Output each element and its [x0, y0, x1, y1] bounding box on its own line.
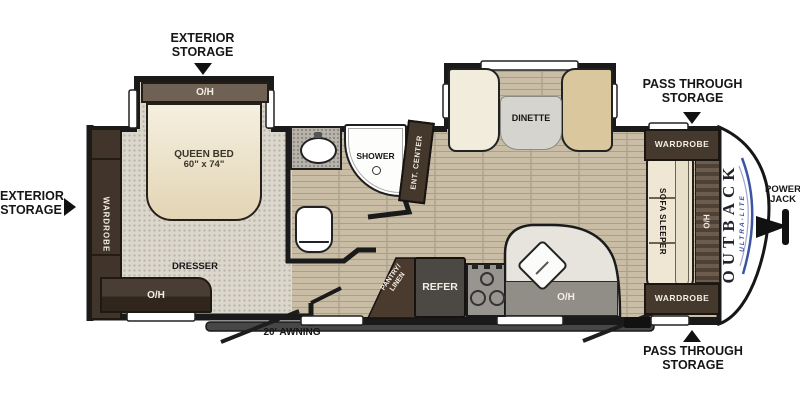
refrigerator: REFER: [414, 257, 466, 318]
window-icon: [481, 61, 578, 70]
bath-vanity: [290, 126, 342, 170]
exterior-storage-left-label: EXTERIOR STORAGE: [0, 190, 62, 218]
cabinet-divider: [92, 158, 120, 160]
arrow-down-icon: [194, 63, 212, 75]
toilet-base: [299, 241, 329, 250]
entertainment-center-label: ENT. CENTER: [409, 134, 425, 189]
brand-sub: ULTRA-LITE: [739, 150, 746, 296]
stove-knob-icon: [496, 264, 502, 269]
entry-door-opening: [301, 316, 363, 325]
arrow-right-icon: [64, 198, 76, 216]
toilet-icon: [295, 206, 333, 253]
front-wardrobe-top: WARDROBE: [644, 129, 720, 161]
shower-label: SHOWER: [346, 152, 405, 161]
stove-knob-icon: [472, 264, 478, 269]
bedroom-door-leaf: [311, 288, 341, 303]
wall-bath-half: [286, 250, 376, 261]
pass-through-bottom-label: PASS THROUGH STORAGE: [640, 345, 746, 373]
stove: [466, 263, 506, 317]
shower-drain-icon: [372, 166, 381, 175]
cabinet-divider: [92, 254, 120, 256]
wardrobe-label: WARDROBE: [655, 294, 710, 303]
bath-sink-icon: [300, 137, 337, 164]
wardrobe-label: WARDROBE: [655, 140, 710, 149]
arrow-up-icon: [683, 330, 701, 342]
rear-wardrobe-label: WARDROBE: [102, 196, 111, 252]
kitchen-overhead-cabinet: O/H: [505, 281, 618, 316]
bedroom-overhead-cabinet: O/H: [141, 82, 269, 103]
sofa-label-wrap: SOFA SLEEPER: [646, 153, 680, 289]
sofa-overhead-cabinet: O/H: [695, 159, 720, 283]
dresser-label: DRESSER: [142, 262, 248, 272]
queen-bed: QUEEN BED 60" x 74": [146, 103, 262, 221]
window-icon: [127, 312, 195, 321]
window-icon: [651, 316, 689, 325]
burner-icon: [470, 290, 486, 306]
refrigerator-label: REFER: [422, 282, 458, 294]
exterior-storage-top-label: EXTERIOR STORAGE: [150, 32, 255, 60]
awning-label: 20' AWNING: [252, 327, 332, 338]
window-icon: [129, 90, 137, 128]
pass-through-top-label: PASS THROUGH STORAGE: [640, 78, 745, 106]
sofa-sleeper-label: SOFA SLEEPER: [659, 187, 668, 254]
dinette-seat-right: [561, 68, 613, 152]
power-jack-label: POWER JACK: [763, 185, 800, 206]
entry-step-icon: [624, 317, 651, 328]
stove-knob-icon: [484, 264, 490, 269]
floor-plan: O/H QUEEN BED 60" x 74" WARDROBE DRESSER…: [0, 0, 800, 400]
dinette-label: DINETTE: [495, 114, 567, 124]
burner-icon: [480, 272, 494, 286]
power-jack-post-icon: [782, 209, 789, 245]
entry-door-opening: [497, 316, 563, 325]
faucet-icon: [535, 261, 548, 274]
dresser-overhead-cabinet: O/H: [100, 277, 212, 313]
overhead-label: O/H: [703, 214, 712, 228]
arrow-down-icon: [683, 112, 701, 124]
overhead-label: O/H: [147, 290, 165, 301]
front-wardrobe-bottom: WARDROBE: [644, 283, 720, 315]
dinette-seat-left: [448, 68, 500, 152]
burner-icon: [489, 290, 505, 306]
overhead-label: O/H: [546, 292, 586, 303]
faucet-icon: [314, 132, 322, 138]
queen-bed-size: 60" x 74": [148, 160, 260, 170]
brand-logo: OUTBACK ULTRA-LITE: [720, 150, 754, 296]
overhead-label: O/H: [196, 87, 214, 98]
brand-name: OUTBACK: [720, 150, 739, 296]
